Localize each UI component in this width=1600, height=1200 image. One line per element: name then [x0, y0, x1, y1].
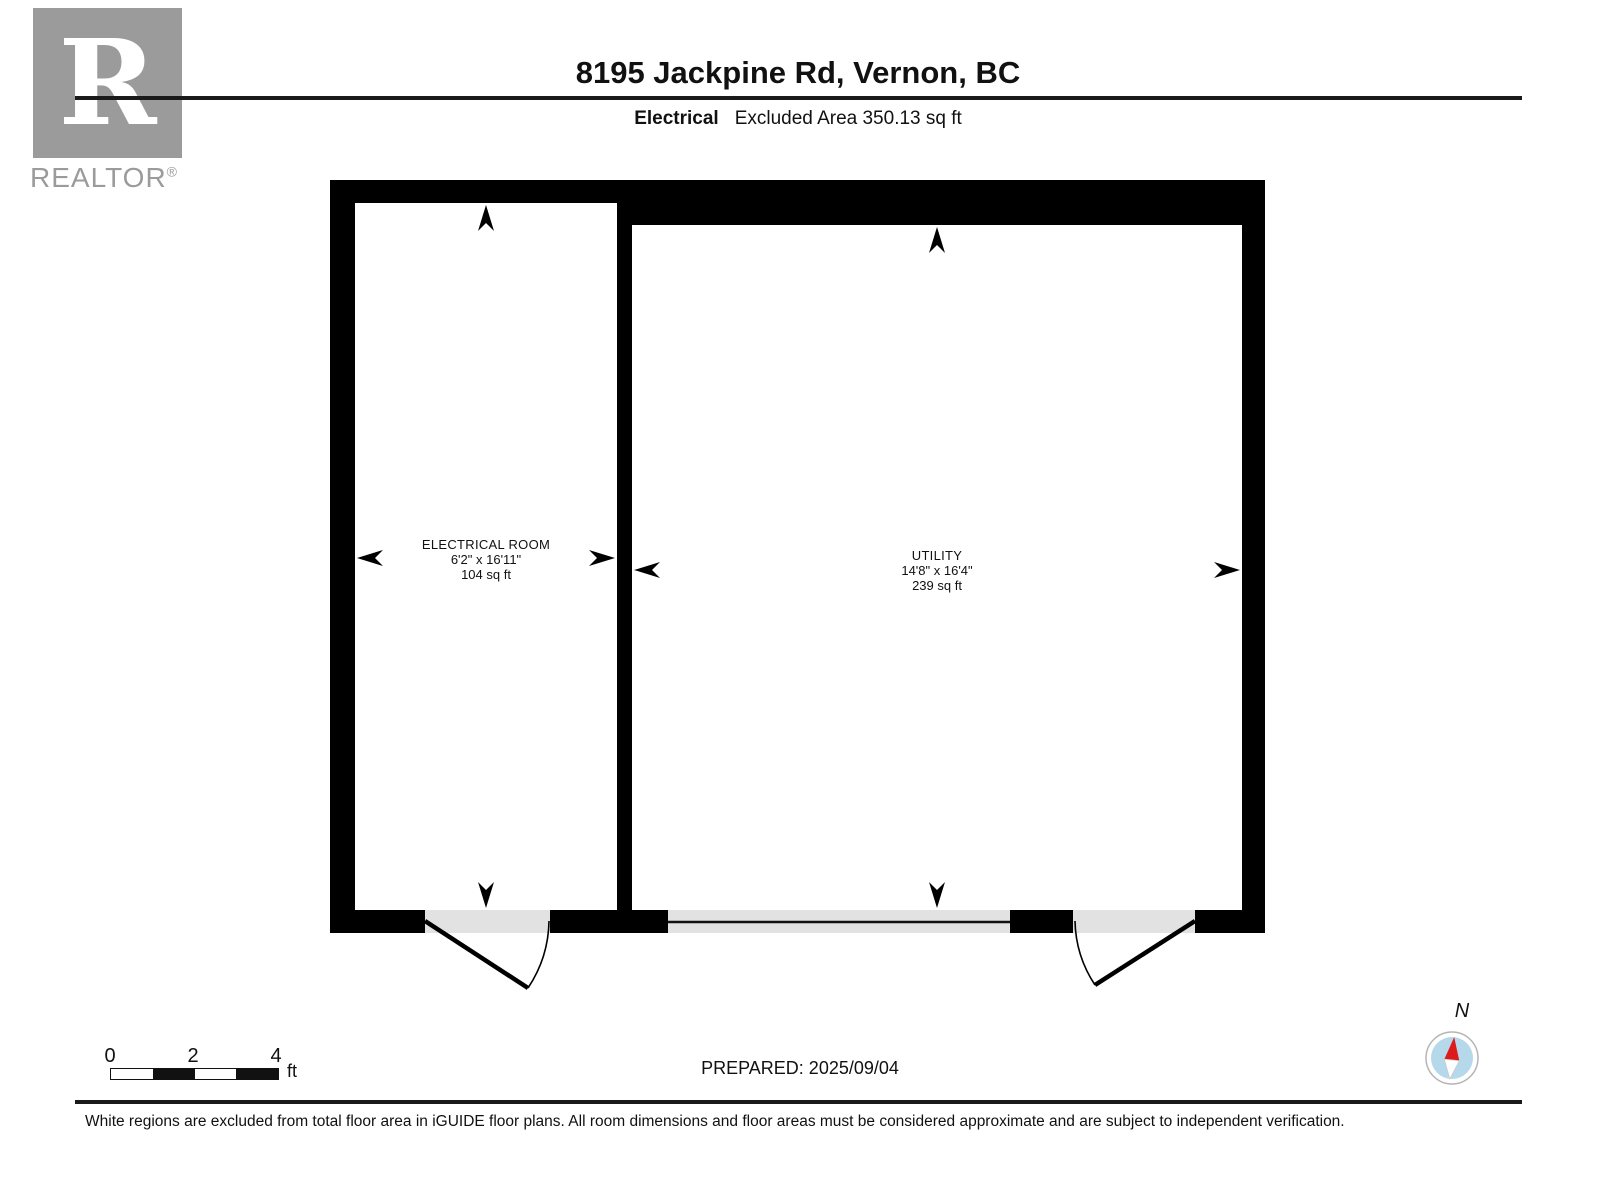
dim-arrow-down-electrical: [478, 882, 494, 908]
room-label-utility: UTILITY 14'8" x 16'4" 239 sq ft: [787, 548, 1087, 593]
dim-arrow-left-utility: [634, 562, 660, 578]
floorplan-page: { "header": { "title": "8195 Jackpine Rd…: [0, 0, 1600, 1200]
header-divider: [75, 96, 1522, 100]
floor-subtitle: ElectricalExcluded Area 350.13 sq ft: [0, 108, 1596, 130]
dim-arrow-down-utility: [929, 882, 945, 908]
prepared-date: PREPARED: 2025/09/04: [0, 1058, 1600, 1079]
room-dimensions: 6'2" x 16'11": [336, 552, 636, 567]
realtor-logo-word: REALTOR®: [30, 162, 178, 194]
floor-name: Electrical: [634, 108, 719, 129]
disclaimer-text: White regions are excluded from total fl…: [85, 1113, 1545, 1131]
room-area: 104 sq ft: [336, 567, 636, 582]
floor-plan: ELECTRICAL ROOM 6'2" x 16'11" 104 sq ft …: [330, 180, 1265, 933]
dim-arrow-up-utility: [929, 227, 945, 253]
dim-arrow-up-electrical: [478, 205, 494, 231]
room-area: 239 sq ft: [787, 578, 1087, 593]
dim-arrow-right-utility: [1214, 562, 1240, 578]
compass-icon: [1424, 1030, 1480, 1086]
room-name: UTILITY: [787, 548, 1087, 563]
registered-mark: ®: [167, 164, 178, 180]
footer-divider: [75, 1100, 1522, 1104]
page-title: 8195 Jackpine Rd, Vernon, BC: [0, 55, 1596, 91]
room-dimensions: 14'8" x 16'4": [787, 563, 1087, 578]
door-arc-utility: [1075, 921, 1095, 985]
compass-north-label: N: [1447, 1000, 1477, 1023]
door-arc-electrical: [528, 921, 549, 988]
door-leaf-utility: [1095, 921, 1195, 985]
excluded-area-text: Excluded Area 350.13 sq ft: [735, 108, 962, 129]
room-label-electrical: ELECTRICAL ROOM 6'2" x 16'11" 104 sq ft: [336, 537, 636, 582]
room-name: ELECTRICAL ROOM: [336, 537, 636, 552]
door-leaf-electrical: [425, 921, 528, 988]
